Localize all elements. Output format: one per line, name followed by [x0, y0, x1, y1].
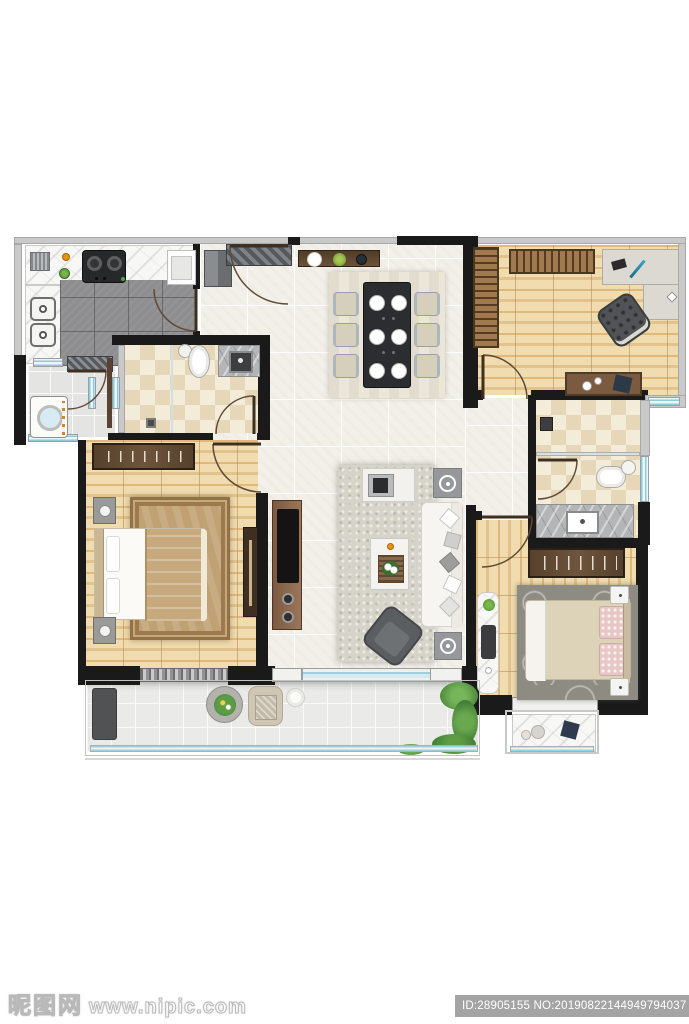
table-lamp — [99, 625, 111, 637]
small-balcony-railing — [510, 746, 594, 752]
table-lamp — [99, 505, 111, 517]
outer-wall-top — [14, 237, 686, 244]
side-table — [433, 468, 462, 498]
table-dot — [382, 351, 385, 354]
washer-door — [37, 405, 63, 431]
burner-right — [107, 256, 122, 271]
table-dot — [392, 351, 395, 354]
console-box — [613, 374, 633, 393]
bedroom2-wardrobe — [528, 548, 625, 578]
washing-machine — [30, 396, 68, 438]
console-cup — [582, 381, 592, 391]
tray-flowers — [382, 561, 399, 576]
bed-duvet — [145, 529, 207, 621]
toilet2-cistern — [621, 460, 636, 475]
speaker — [282, 593, 294, 605]
bedroom2-top-wall-left — [466, 511, 482, 520]
place-setting — [391, 295, 407, 311]
nightstand — [610, 586, 629, 604]
bathroom1-bottom-wall-right — [257, 433, 270, 440]
place-setting — [369, 329, 385, 345]
bench-dot — [485, 667, 492, 674]
bathroom2-bottom-wall — [528, 538, 648, 548]
decor-bowl — [356, 254, 367, 265]
place-setting — [369, 363, 385, 379]
toilet1-bowl — [188, 345, 210, 378]
bed-pillow — [106, 578, 120, 614]
vanity1-faucet — [238, 358, 243, 363]
media-cabinet — [362, 468, 415, 502]
bathroom1-top-wall — [112, 335, 270, 345]
console-cup — [594, 377, 602, 385]
dining-table — [363, 282, 411, 388]
stove-indicator — [121, 277, 125, 281]
bedroom2-bed — [525, 600, 631, 680]
nightstand — [93, 497, 116, 524]
outer-wall-right-study — [678, 243, 686, 403]
bathroom1-window — [112, 377, 120, 409]
nipic-url: www.nipic.com — [89, 996, 247, 1019]
sink-drain-1 — [39, 305, 47, 313]
nightstand — [610, 678, 629, 696]
shower-glass-divider — [536, 452, 640, 456]
decor-stones — [521, 730, 531, 740]
nipic-logo: 昵图网 — [8, 986, 83, 1020]
nightstand-knob — [619, 594, 622, 597]
side-table — [434, 632, 462, 660]
nightstand — [93, 617, 116, 644]
bed-runner — [526, 601, 546, 681]
bathroom2-right-wall-upper — [640, 400, 650, 456]
oil-bottle — [62, 253, 70, 261]
bookshelf-tall — [473, 247, 499, 348]
decor-stones — [531, 725, 545, 739]
kitchen-sink — [29, 296, 59, 350]
stove-knob-1 — [95, 277, 98, 280]
side-table-dot — [446, 644, 450, 648]
cabinet-screen — [373, 478, 388, 493]
basin-inner — [171, 256, 192, 280]
place-setting — [391, 363, 407, 379]
floor-drain — [146, 418, 156, 428]
study-console-table — [565, 372, 642, 396]
floorplan-canvas: 昵图网 www.nipic.com ID:28905155 NO:2019082… — [0, 0, 689, 1024]
corridor-floor — [465, 398, 535, 520]
decor-plate — [307, 252, 322, 267]
step-wall-window — [648, 397, 680, 406]
image-id-badge: ID:28905155 NO:20190822144949794037 — [455, 995, 689, 1017]
dining-chair — [414, 323, 440, 347]
dresser-handle — [249, 540, 252, 606]
dining-chair — [414, 354, 440, 378]
master-wardrobe — [92, 443, 195, 470]
entry-doormat — [226, 244, 292, 266]
nightstand-knob — [619, 686, 622, 689]
place-setting — [369, 295, 385, 311]
shower-head — [540, 417, 553, 431]
television — [277, 509, 299, 583]
sofa — [421, 502, 463, 627]
dish-rack — [30, 252, 50, 271]
armchair-seat — [373, 620, 411, 658]
table-dot — [382, 317, 385, 320]
master-dresser — [243, 527, 258, 617]
bathroom2-window — [640, 456, 649, 502]
dining-sideboard — [298, 250, 380, 267]
bench-plant — [483, 599, 495, 611]
bed-pillow — [106, 536, 120, 572]
study-bottom-wall-stub — [476, 390, 483, 400]
bookshelf-wide — [509, 249, 595, 274]
bed-headboard — [623, 599, 630, 683]
tv-console — [272, 500, 302, 630]
bedroom2-bench — [477, 592, 499, 694]
shower-screen-line — [171, 345, 173, 433]
lightwell-window — [88, 377, 96, 409]
master-bed — [94, 528, 206, 620]
burner-left — [87, 256, 102, 271]
watermark: 昵图网 www.nipic.com — [8, 986, 247, 1020]
speaker — [282, 611, 294, 623]
bathroom2-left-wall — [528, 395, 536, 545]
dining-chair — [333, 292, 359, 316]
dining-chair — [333, 323, 359, 347]
dining-chair — [414, 292, 440, 316]
utility-window-top — [33, 358, 63, 367]
stove — [82, 250, 126, 283]
decor-plant — [333, 253, 346, 266]
bed-pillow-floral — [599, 606, 624, 639]
vanity2 — [536, 504, 634, 538]
bathroom1-bottom-wall-left — [108, 433, 213, 440]
sink-drain-2 — [39, 331, 47, 339]
table-candle — [387, 543, 394, 550]
master-left-wall — [78, 440, 86, 685]
side-table-dot — [446, 482, 450, 486]
bench-tray — [481, 625, 496, 659]
vegetable-bowl — [59, 268, 70, 279]
washer-buttons — [62, 401, 65, 435]
vanity1 — [218, 345, 260, 377]
coffee-table — [370, 538, 409, 590]
table-dot — [392, 317, 395, 320]
bed-pillow-floral — [599, 643, 624, 676]
place-setting — [391, 329, 407, 345]
desk-return — [643, 284, 679, 320]
kitchen-basin — [167, 250, 196, 285]
balcony-outer-line — [85, 758, 480, 760]
outer-wall-left-upper — [14, 244, 22, 360]
balcony-outer-frame — [85, 680, 480, 756]
vanity2-faucet — [580, 519, 585, 524]
outer-wall-left-lower — [14, 355, 26, 445]
stove-knob-2 — [103, 277, 106, 280]
bed-headboard — [95, 529, 104, 621]
dining-chair — [333, 354, 359, 378]
